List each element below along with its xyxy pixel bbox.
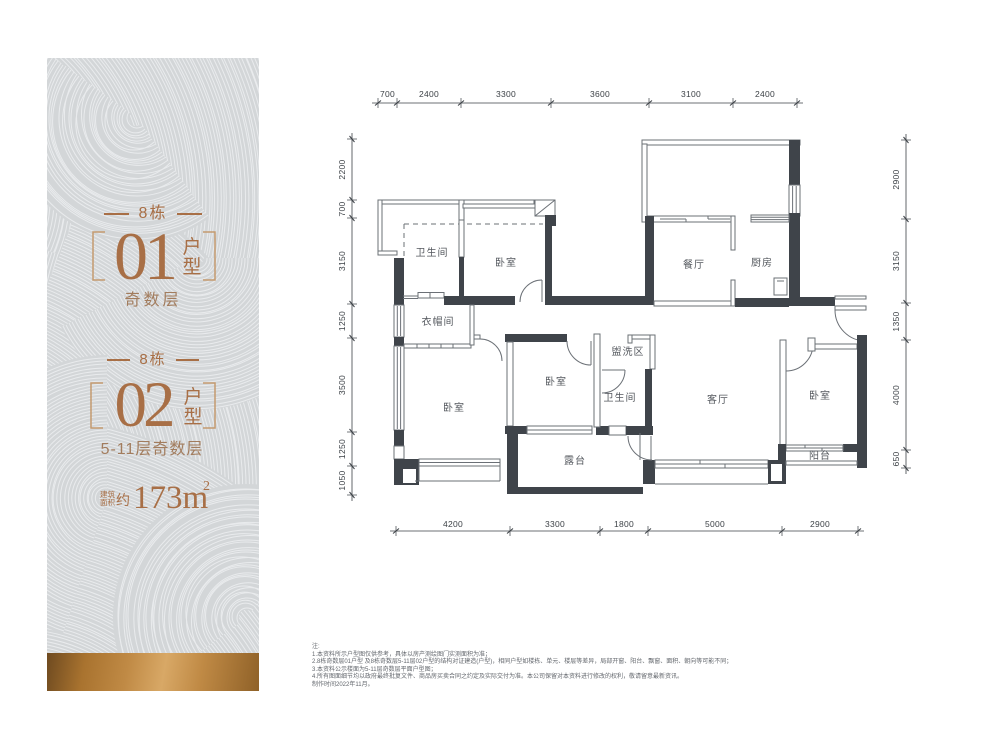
svg-text:3300: 3300 xyxy=(496,89,516,99)
svg-text:2400: 2400 xyxy=(419,89,439,99)
svg-text:卧室: 卧室 xyxy=(495,256,517,269)
svg-text:阳台: 阳台 xyxy=(809,449,831,462)
svg-text:2900: 2900 xyxy=(810,519,830,529)
svg-text:700: 700 xyxy=(337,201,347,216)
svg-text:3150: 3150 xyxy=(891,251,901,271)
svg-text:面积: 面积 xyxy=(100,497,115,507)
svg-text:3100: 3100 xyxy=(681,89,701,99)
svg-text:3600: 3600 xyxy=(590,89,610,99)
svg-text:型: 型 xyxy=(183,406,202,428)
svg-text:650: 650 xyxy=(891,451,901,466)
svg-text:客厅: 客厅 xyxy=(707,393,729,406)
svg-text:2400: 2400 xyxy=(755,89,775,99)
svg-text:卧室: 卧室 xyxy=(545,375,567,388)
svg-text:型: 型 xyxy=(182,256,201,278)
svg-text:5000: 5000 xyxy=(705,519,725,529)
svg-text:卫生间: 卫生间 xyxy=(604,391,637,404)
svg-text:3500: 3500 xyxy=(337,375,347,395)
svg-text:1350: 1350 xyxy=(891,311,901,331)
svg-text:2200: 2200 xyxy=(337,159,347,179)
svg-text:01: 01 xyxy=(114,218,174,294)
svg-text:厨房: 厨房 xyxy=(751,256,773,269)
svg-text:173m: 173m xyxy=(133,480,209,516)
svg-text:700: 700 xyxy=(380,89,395,99)
svg-text:3150: 3150 xyxy=(337,251,347,271)
svg-text:户: 户 xyxy=(182,236,201,258)
svg-text:5-11层奇数层: 5-11层奇数层 xyxy=(101,440,204,458)
svg-text:02: 02 xyxy=(115,369,173,441)
svg-text:卧室: 卧室 xyxy=(443,401,465,414)
svg-text:4200: 4200 xyxy=(443,519,463,529)
svg-text:1800: 1800 xyxy=(614,519,634,529)
svg-text:餐厅: 餐厅 xyxy=(683,258,705,271)
svg-text:1050: 1050 xyxy=(337,470,347,490)
svg-text:3300: 3300 xyxy=(545,519,565,529)
svg-text:约: 约 xyxy=(116,492,130,508)
svg-text:卫生间: 卫生间 xyxy=(416,246,449,259)
svg-text:衣帽间: 衣帽间 xyxy=(422,315,455,328)
svg-text:露台: 露台 xyxy=(564,454,586,467)
svg-text:1250: 1250 xyxy=(337,439,347,459)
svg-text:盥洗区: 盥洗区 xyxy=(612,346,645,358)
svg-text:2900: 2900 xyxy=(891,169,901,189)
svg-text:户: 户 xyxy=(183,386,202,408)
svg-text:奇数层: 奇数层 xyxy=(124,291,181,309)
svg-text:卧室: 卧室 xyxy=(809,389,831,402)
svg-text:2: 2 xyxy=(203,479,210,494)
svg-text:4000: 4000 xyxy=(891,385,901,405)
svg-text:1250: 1250 xyxy=(337,311,347,331)
